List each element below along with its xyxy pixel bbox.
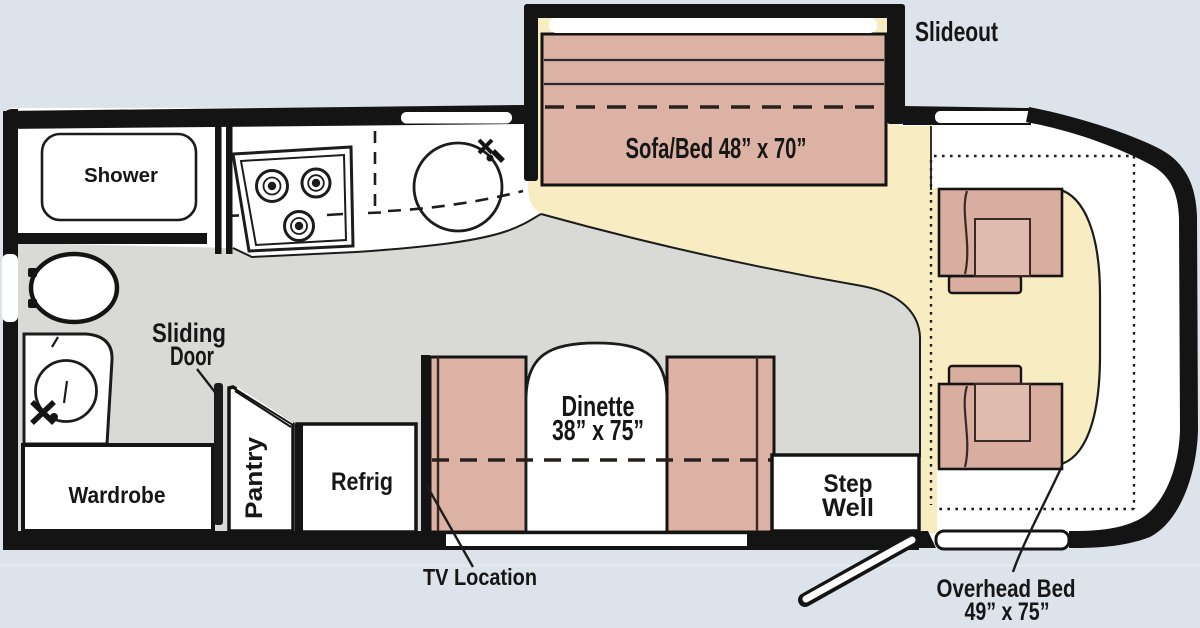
svg-text:Wardrobe: Wardrobe bbox=[69, 482, 166, 508]
svg-text:49” x 75”: 49” x 75” bbox=[965, 598, 1050, 626]
svg-text:Sofa/Bed 48” x 70”: Sofa/Bed 48” x 70” bbox=[626, 133, 807, 165]
svg-text:Refrig: Refrig bbox=[331, 468, 393, 496]
svg-text:Pantry: Pantry bbox=[241, 436, 268, 519]
svg-text:Well: Well bbox=[822, 494, 874, 522]
svg-text:Shower: Shower bbox=[84, 165, 158, 187]
svg-text:TV Location: TV Location bbox=[423, 564, 537, 590]
svg-text:38” x 75”: 38” x 75” bbox=[552, 415, 644, 447]
svg-text:Slideout: Slideout bbox=[915, 16, 998, 47]
svg-text:Door: Door bbox=[170, 341, 214, 371]
